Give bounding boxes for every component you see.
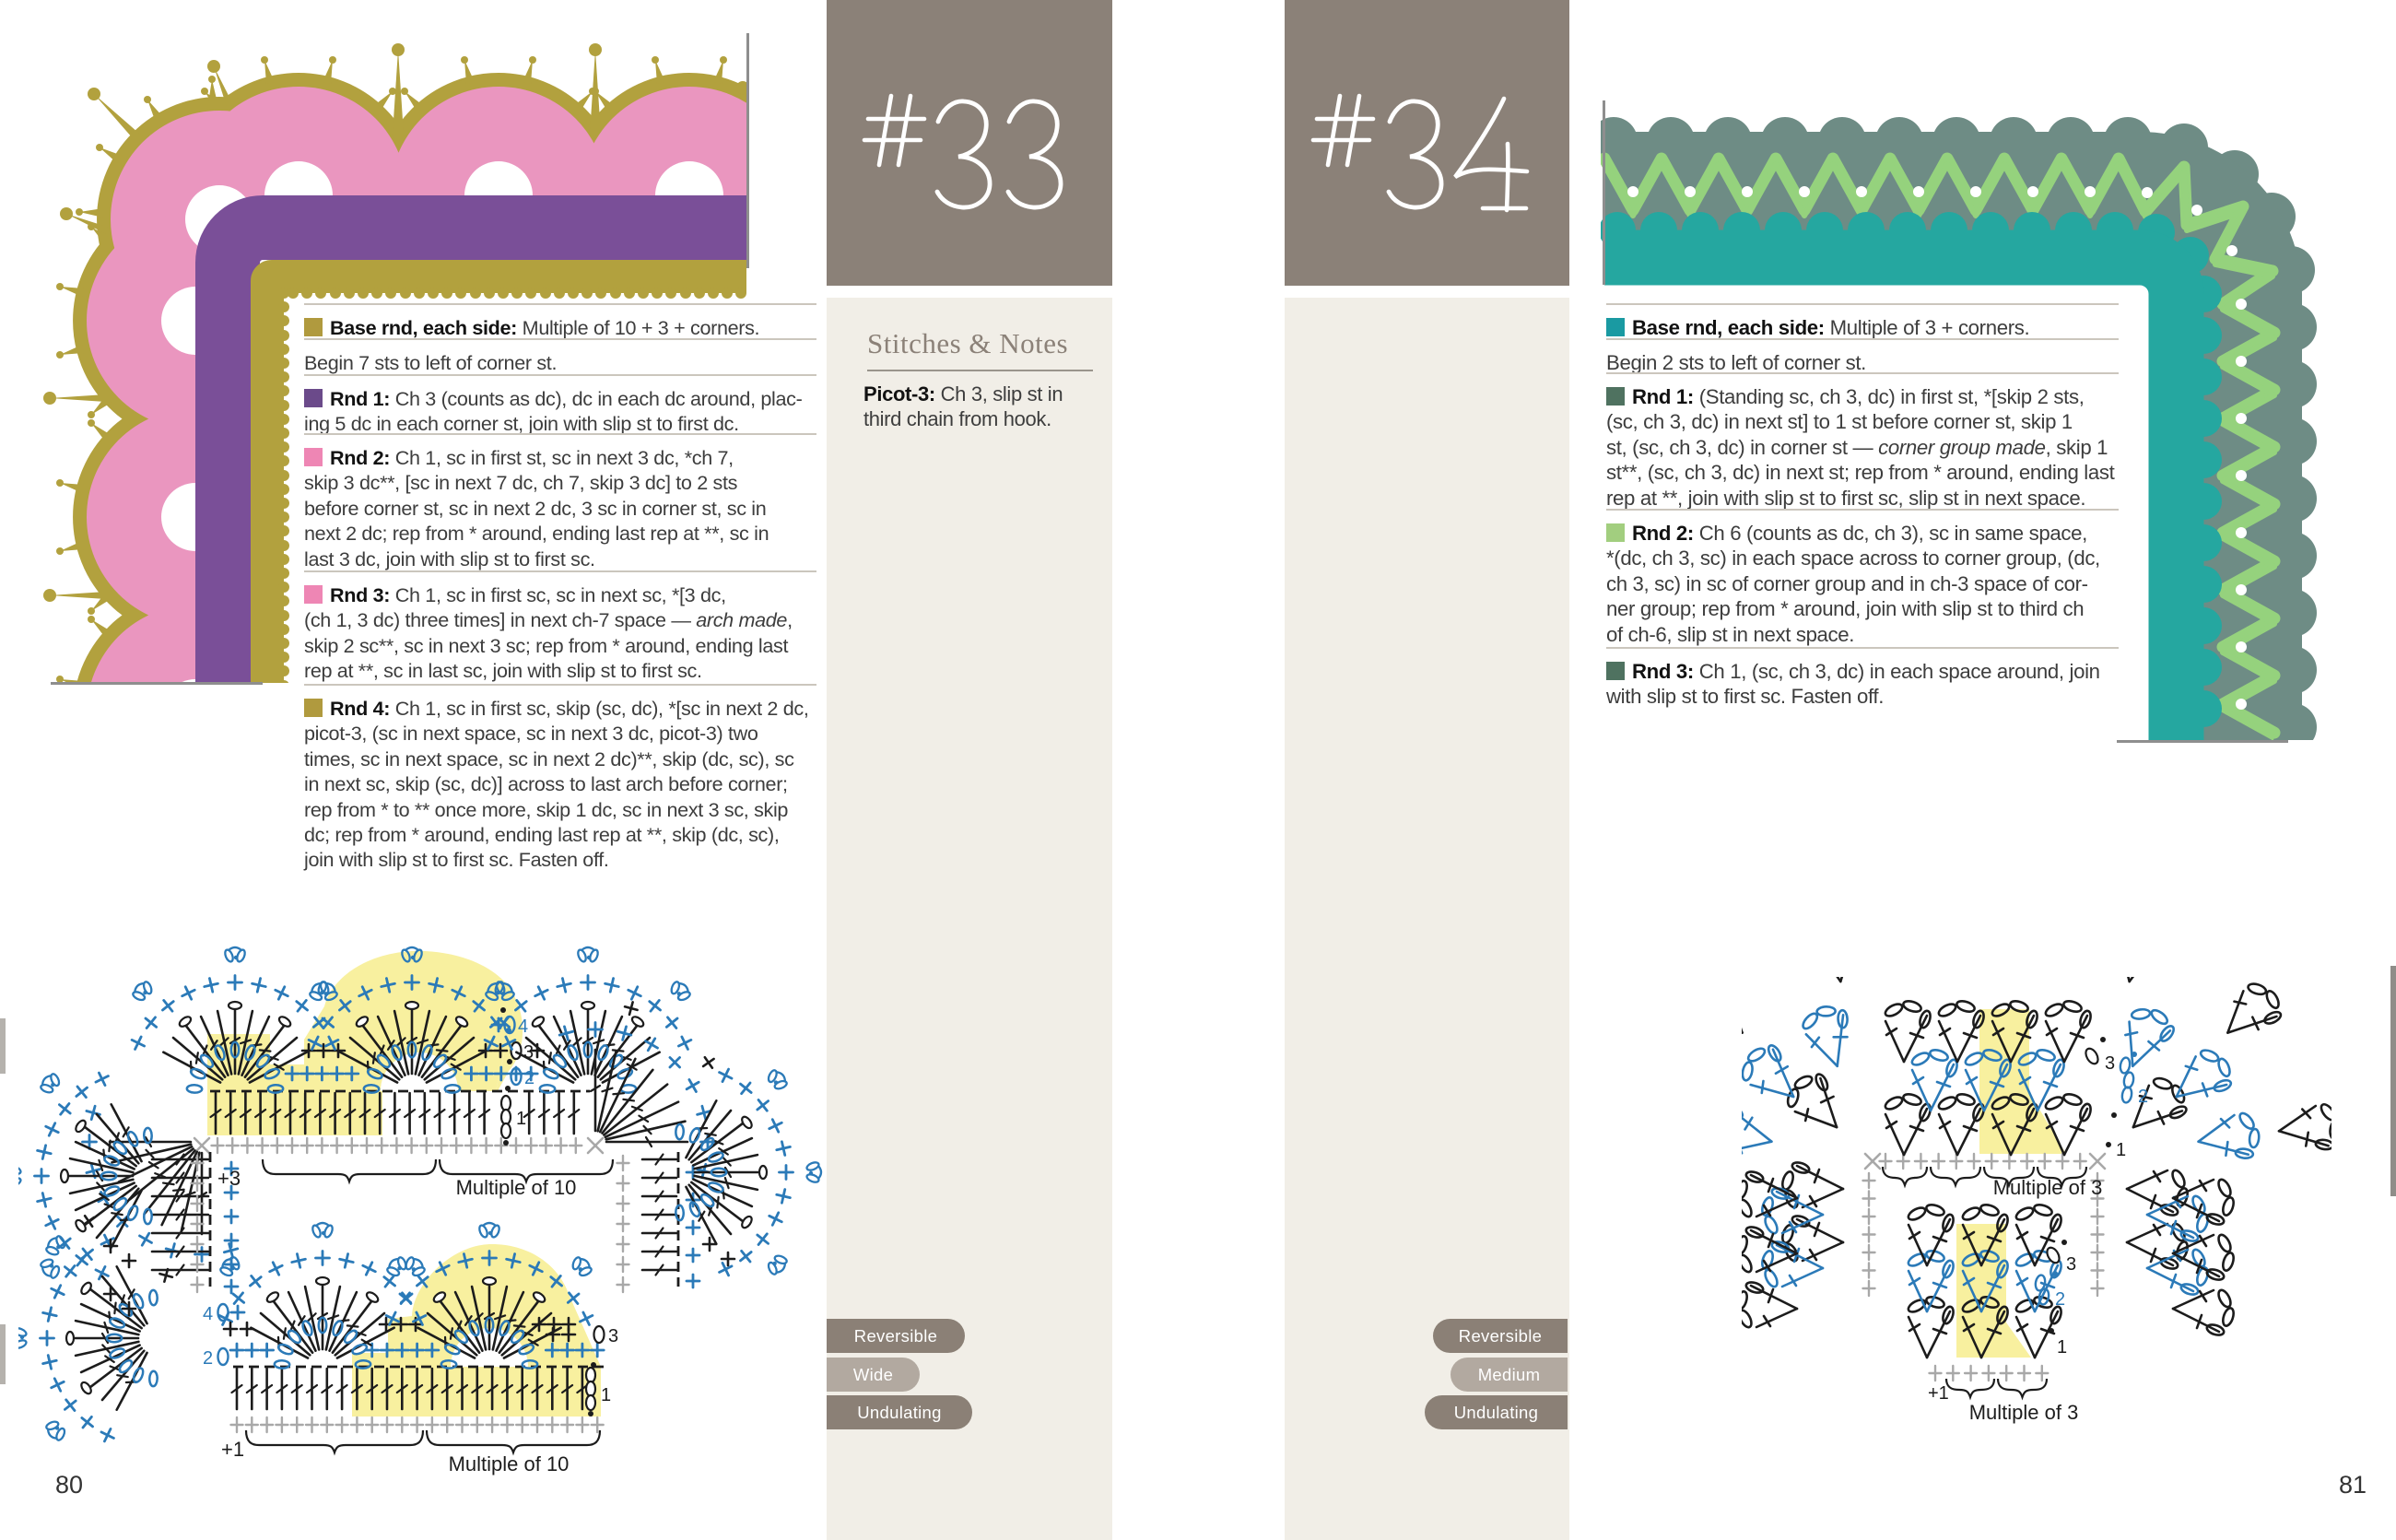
- svg-text:3: 3: [2105, 1053, 2115, 1074]
- svg-text:Multiple of 3: Multiple of 3: [1993, 1176, 2103, 1199]
- svg-text:+1: +1: [221, 1438, 244, 1461]
- svg-text:1: 1: [2116, 1140, 2126, 1160]
- svg-text:Multiple of 3: Multiple of 3: [1969, 1401, 2079, 1424]
- svg-text:1: 1: [2057, 1337, 2067, 1358]
- svg-text:Multiple of 10: Multiple of 10: [456, 1176, 577, 1199]
- svg-text:2: 2: [2138, 1087, 2148, 1107]
- svg-text:4: 4: [518, 1017, 528, 1037]
- svg-text:2: 2: [203, 1348, 213, 1369]
- svg-text:3: 3: [2066, 1254, 2076, 1275]
- svg-text:4: 4: [203, 1304, 213, 1324]
- svg-text:1: 1: [601, 1385, 611, 1405]
- svg-text:2: 2: [2055, 1289, 2065, 1310]
- svg-text:2: 2: [524, 1068, 534, 1088]
- svg-text:+3: +3: [217, 1167, 241, 1190]
- svg-text:+1: +1: [1928, 1383, 1949, 1404]
- svg-text:3: 3: [608, 1326, 618, 1346]
- svg-text:1: 1: [516, 1109, 526, 1129]
- svg-text:Multiple of 10: Multiple of 10: [449, 1452, 570, 1475]
